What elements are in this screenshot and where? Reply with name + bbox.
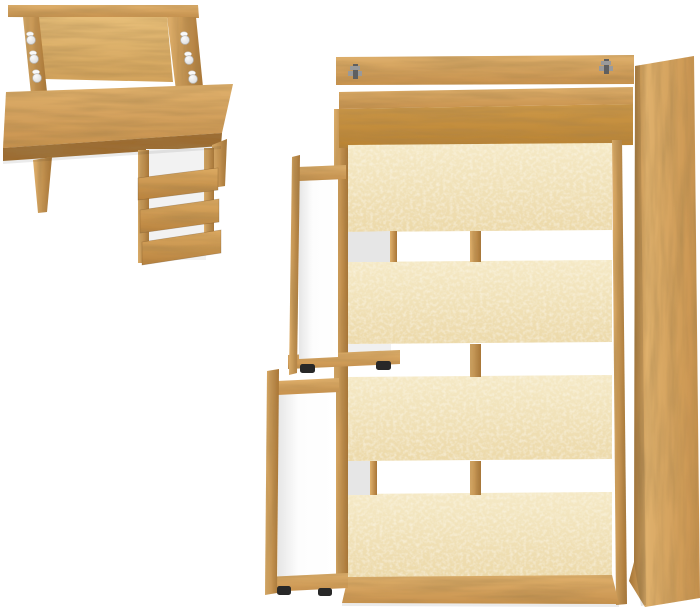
- bed-gap3-drawer-edge: [370, 461, 377, 495]
- bed-right-rail: [612, 140, 627, 605]
- bed-center-divider-2: [470, 344, 481, 377]
- bed-drawer-lower: [265, 369, 348, 596]
- drawer-front-edge: [289, 155, 300, 375]
- bed-gap3-drawer-interior: [348, 461, 370, 495]
- bed-headboard-top-rail: [336, 55, 634, 85]
- drawer-interior: [299, 178, 338, 359]
- bed-center-divider-1: [470, 231, 481, 262]
- bed-center-divider-3: [470, 461, 481, 495]
- bed-slat-panel-3: [348, 375, 612, 461]
- bed-footboard: [342, 575, 619, 604]
- desk-top-bar: [8, 5, 199, 18]
- drawer-front-edge: [265, 369, 279, 595]
- bed-slat-panel-4: [348, 492, 612, 578]
- drawer-interior: [278, 391, 336, 578]
- bed-gap1-drawer-interior: [348, 231, 390, 262]
- desk: [3, 5, 233, 265]
- bed: [265, 55, 700, 607]
- furniture-scene: [0, 0, 700, 611]
- desk-drawer-carcass-right-side: [204, 148, 214, 238]
- desk-leg-left: [33, 157, 52, 213]
- drawer-glide-foot: [376, 361, 391, 370]
- bed-slat-panel-2: [348, 260, 612, 344]
- bed-headboard-panel: [339, 104, 633, 148]
- drawer-glide-foot: [318, 588, 332, 596]
- drawer-glide-foot: [300, 364, 315, 373]
- desk-lid-panel: [38, 17, 173, 82]
- furniture-product-photo: [0, 0, 700, 611]
- drawer-glide-foot: [277, 586, 291, 595]
- drawer-top-rim: [298, 165, 346, 181]
- bed-gap1-drawer-edge: [390, 231, 397, 262]
- bed-slat-panel-1: [348, 143, 612, 232]
